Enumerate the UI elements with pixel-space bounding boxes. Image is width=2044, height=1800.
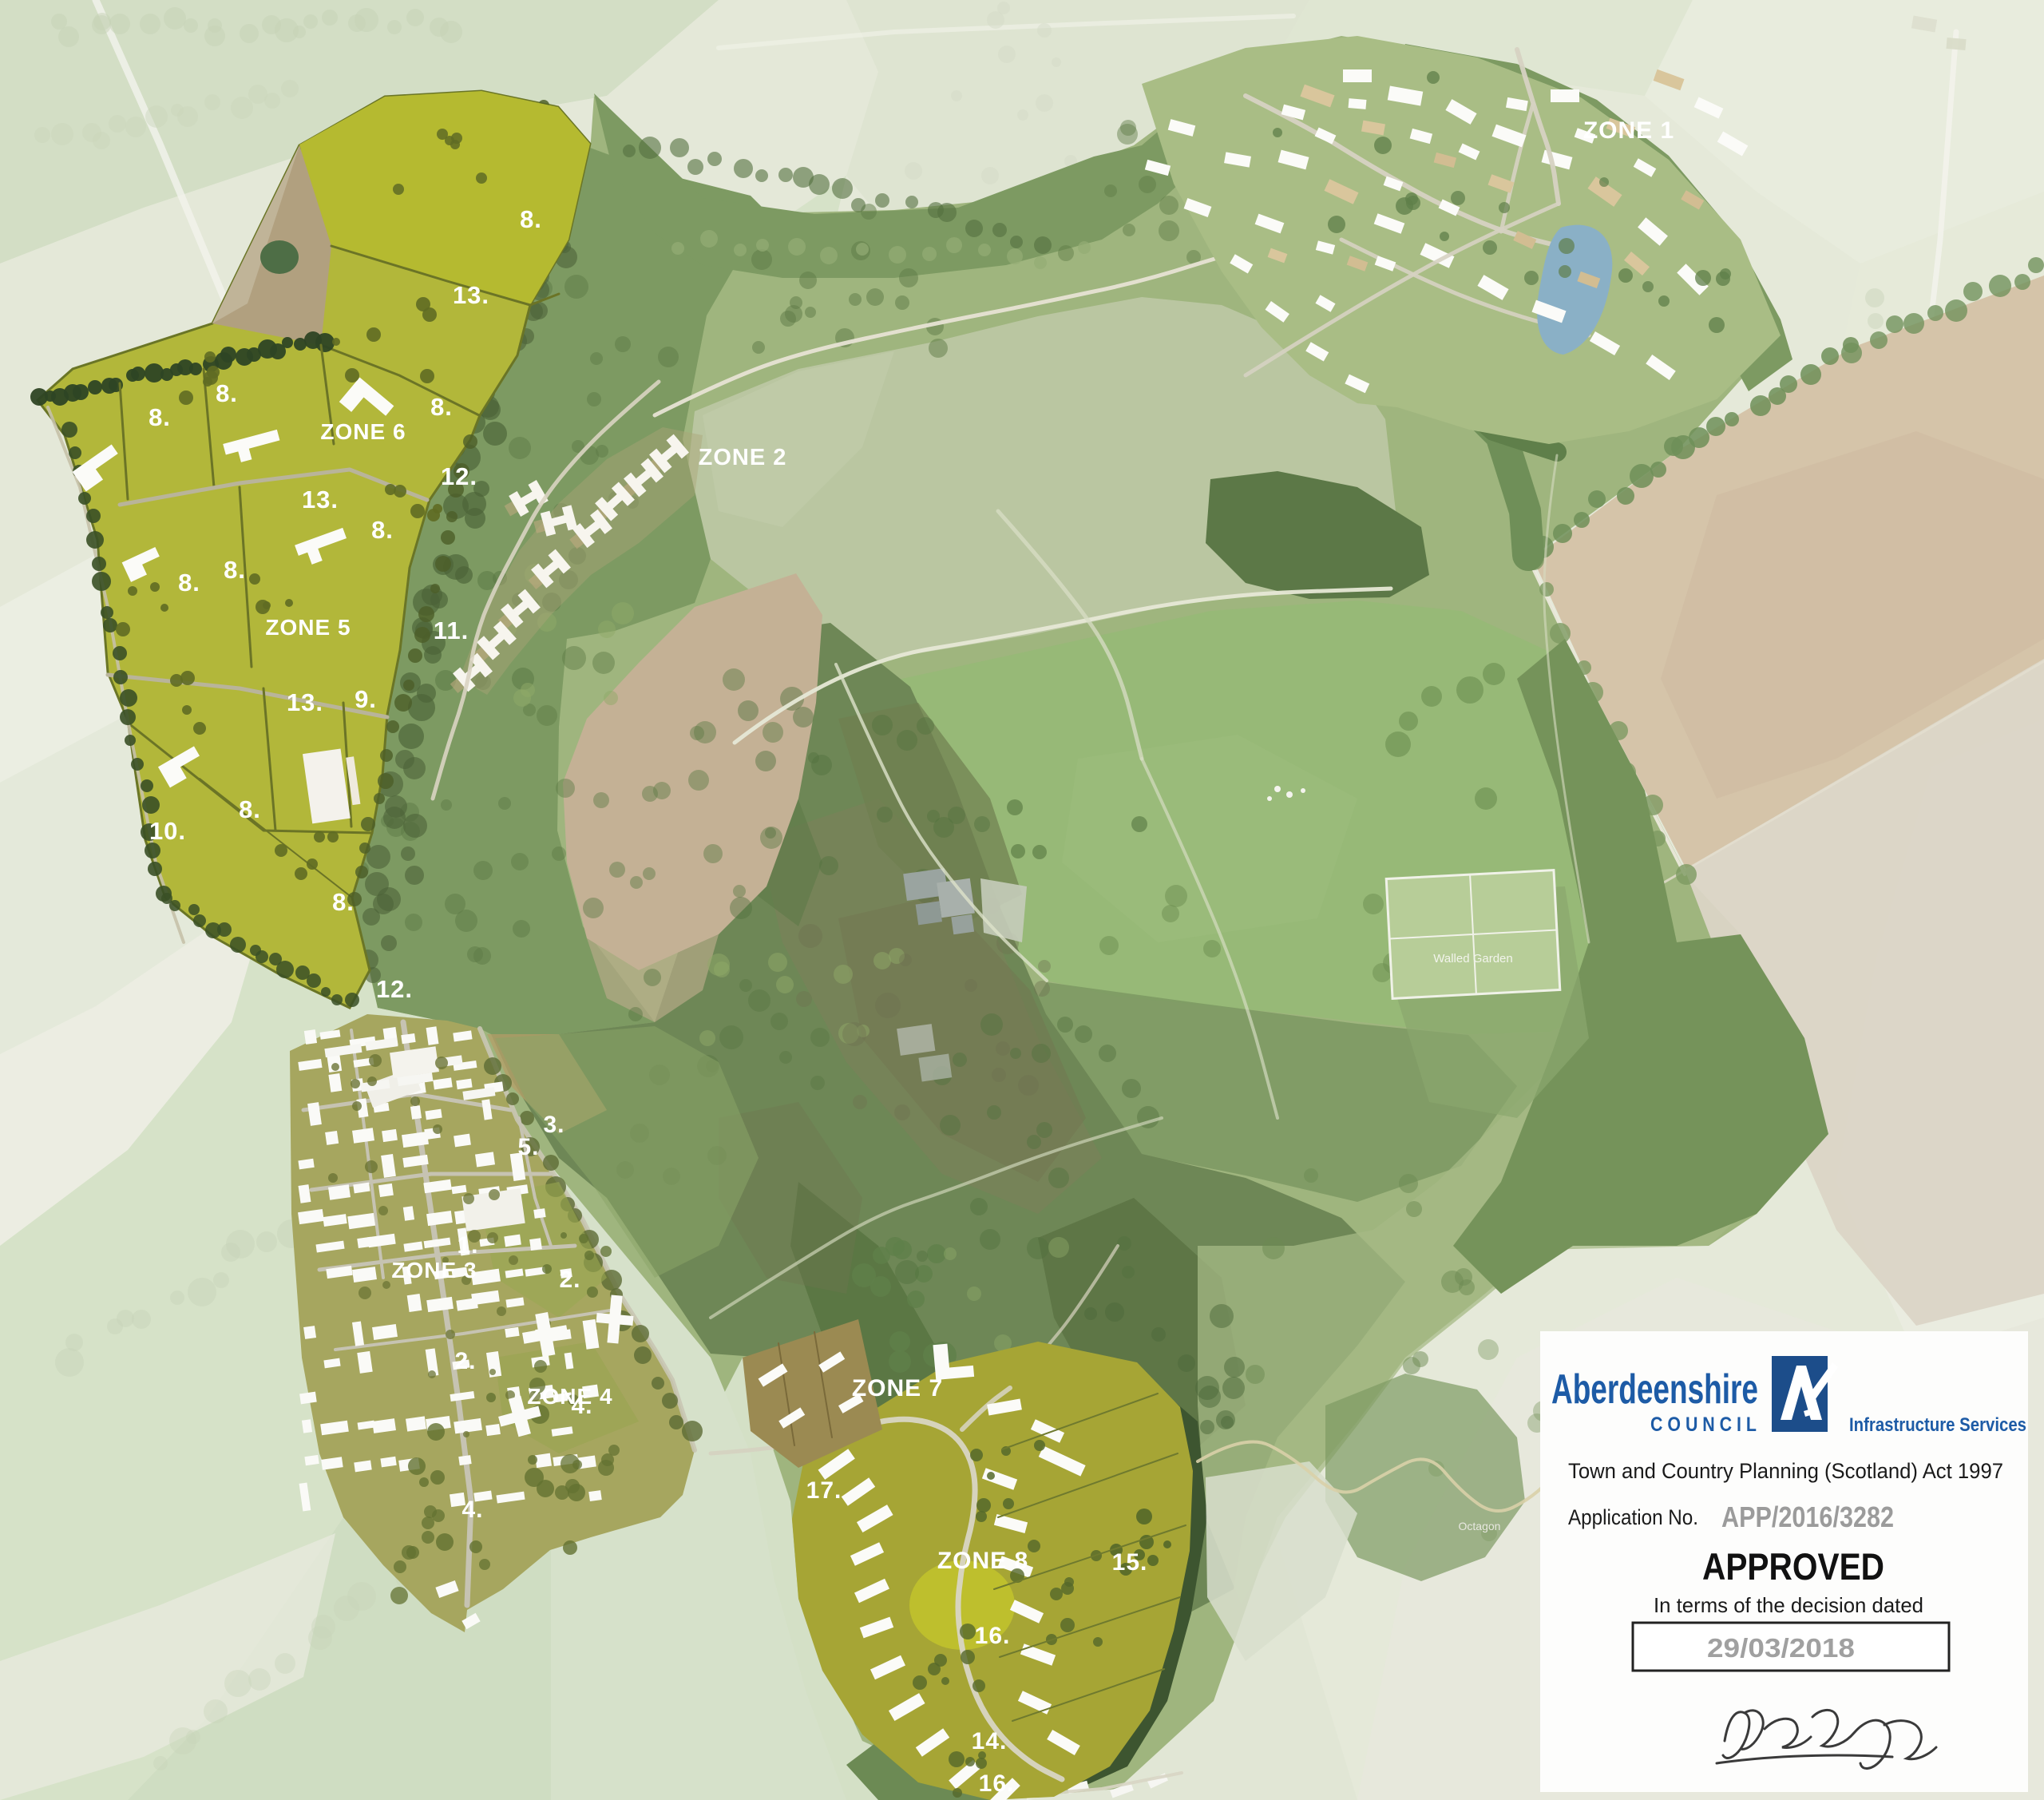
svg-text:ZONE 2: ZONE 2 <box>699 445 787 470</box>
svg-text:ZONE 5: ZONE 5 <box>265 615 351 640</box>
svg-text:13.: 13. <box>453 281 489 309</box>
svg-text:8.: 8. <box>224 556 246 584</box>
svg-text:ZONE 3: ZONE 3 <box>391 1258 477 1283</box>
svg-text:8.: 8. <box>430 393 453 421</box>
svg-text:ZONE 7: ZONE 7 <box>852 1375 943 1402</box>
svg-text:APPROVED: APPROVED <box>1702 1545 1884 1588</box>
svg-text:ZONE 8: ZONE 8 <box>937 1548 1028 1574</box>
svg-text:10.: 10. <box>149 817 186 845</box>
svg-text:16.: 16. <box>979 1770 1015 1797</box>
svg-text:Town and Country Planning (Sco: Town and Country Planning (Scotland) Act… <box>1568 1459 2003 1483</box>
svg-text:2.: 2. <box>559 1267 580 1293</box>
svg-text:ZONE 6: ZONE 6 <box>320 419 406 444</box>
svg-text:14.: 14. <box>972 1728 1008 1754</box>
svg-text:8.: 8. <box>239 795 261 823</box>
svg-text:Walled Garden: Walled Garden <box>1433 952 1513 965</box>
svg-text:5.: 5. <box>517 1134 539 1160</box>
svg-text:8.: 8. <box>371 516 394 544</box>
svg-text:3.: 3. <box>543 1112 564 1138</box>
svg-text:8.: 8. <box>332 888 355 916</box>
svg-text:In terms of the decision dated: In terms of the decision dated <box>1654 1593 1923 1617</box>
svg-text:Aberdeenshire: Aberdeenshire <box>1551 1366 1758 1413</box>
svg-text:Infrastructure Services: Infrastructure Services <box>1849 1414 2026 1436</box>
svg-text:29/03/2018: 29/03/2018 <box>1707 1633 1855 1663</box>
svg-text:APP/2016/3282: APP/2016/3282 <box>1721 1501 1894 1533</box>
svg-text:C O U N C I L: C O U N C I L <box>1650 1413 1757 1436</box>
svg-text:16.: 16. <box>975 1623 1011 1649</box>
svg-text:8.: 8. <box>520 205 542 233</box>
svg-text:4.: 4. <box>461 1497 483 1523</box>
svg-text:12.: 12. <box>376 975 413 1003</box>
svg-text:4.: 4. <box>571 1393 592 1419</box>
svg-text:8.: 8. <box>216 379 238 407</box>
svg-text:8.: 8. <box>178 569 200 597</box>
svg-text:13.: 13. <box>287 688 323 716</box>
svg-text:ZONE 1: ZONE 1 <box>1583 117 1674 144</box>
svg-text:15.: 15. <box>1112 1549 1148 1576</box>
svg-text:8.: 8. <box>149 403 171 431</box>
svg-text:12.: 12. <box>441 462 477 490</box>
svg-text:11.: 11. <box>434 617 469 644</box>
svg-text:9.: 9. <box>355 685 377 713</box>
svg-text:2.: 2. <box>454 1348 476 1374</box>
svg-text:1.: 1. <box>457 1232 478 1259</box>
svg-text:ZONE 4: ZONE 4 <box>527 1384 612 1409</box>
svg-text:Octagon: Octagon <box>1459 1520 1501 1532</box>
svg-text:Application No.: Application No. <box>1568 1505 1698 1529</box>
svg-text:17.: 17. <box>806 1477 842 1504</box>
svg-text:13.: 13. <box>302 486 339 513</box>
